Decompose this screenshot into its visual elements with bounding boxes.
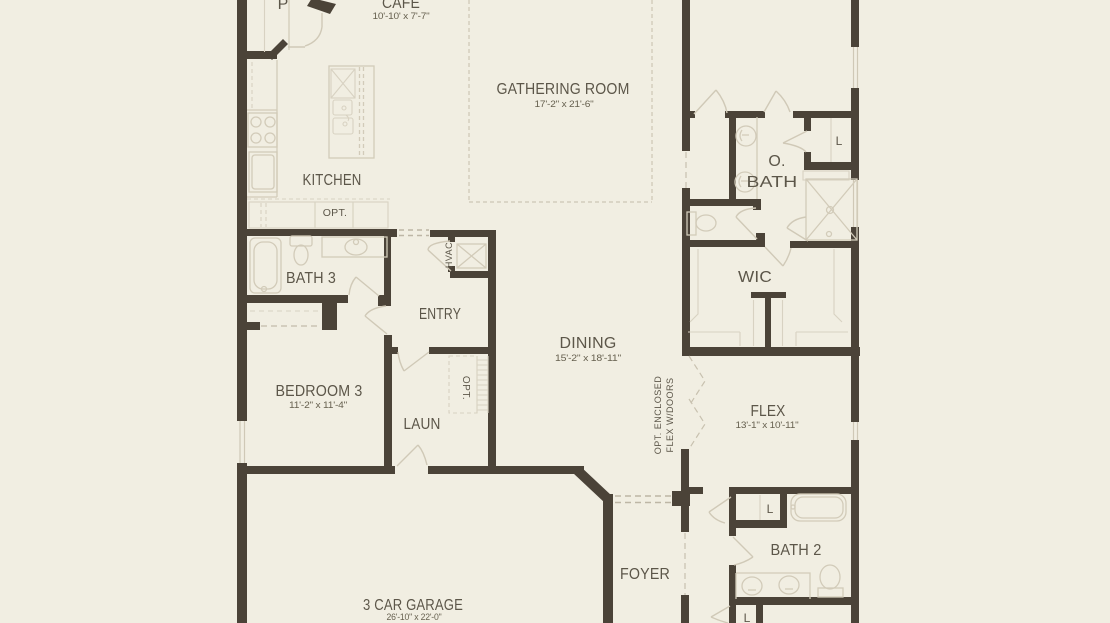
svg-text:OPT.: OPT.	[460, 376, 471, 400]
svg-text:P: P	[278, 0, 289, 13]
svg-text:BATH 2: BATH 2	[771, 542, 822, 559]
svg-text:BATH 3: BATH 3	[286, 270, 336, 287]
svg-text:LAUN: LAUN	[404, 416, 441, 433]
svg-text:L: L	[744, 611, 751, 623]
svg-text:OPT.: OPT.	[323, 207, 348, 219]
svg-text:FLEX W/DOORS: FLEX W/DOORS	[665, 377, 675, 452]
svg-text:GATHERING ROOM: GATHERING ROOM	[497, 81, 630, 98]
svg-text:L: L	[767, 502, 774, 516]
svg-text:17'-2" x 21'-6": 17'-2" x 21'-6"	[535, 99, 594, 109]
svg-text:15'-2" x 18'-11": 15'-2" x 18'-11"	[555, 353, 621, 363]
svg-text:BATH: BATH	[747, 174, 798, 191]
svg-text:O.: O.	[768, 153, 785, 170]
svg-text:ENTRY: ENTRY	[419, 306, 461, 323]
svg-text:10'-10' x 7'-7": 10'-10' x 7'-7"	[373, 11, 430, 21]
svg-text:13'-1" x 10'-11": 13'-1" x 10'-11"	[736, 420, 799, 430]
svg-text:HVAC: HVAC	[444, 242, 454, 268]
svg-text:11'-2" x 11'-4": 11'-2" x 11'-4"	[289, 400, 347, 410]
svg-text:26'-10" x 22'-0": 26'-10" x 22'-0"	[387, 612, 442, 622]
svg-text:DINING: DINING	[560, 335, 617, 352]
svg-text:WIC: WIC	[738, 269, 772, 286]
svg-text:OPT. ENCLOSED: OPT. ENCLOSED	[653, 376, 663, 455]
svg-text:KITCHEN: KITCHEN	[303, 172, 362, 189]
svg-text:FLEX: FLEX	[751, 403, 786, 420]
svg-text:BEDROOM 3: BEDROOM 3	[276, 383, 363, 400]
svg-text:L: L	[836, 134, 843, 148]
svg-text:FOYER: FOYER	[620, 566, 670, 583]
